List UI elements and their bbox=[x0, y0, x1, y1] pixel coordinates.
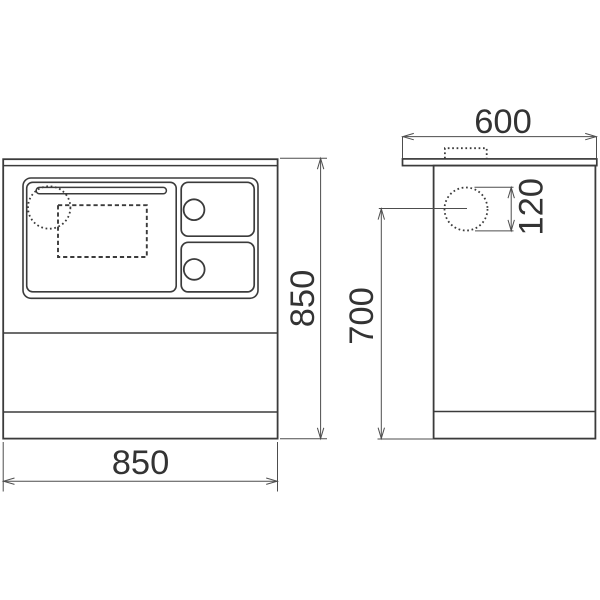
svg-text:850: 850 bbox=[112, 444, 170, 482]
svg-text:700: 700 bbox=[343, 287, 381, 345]
svg-text:600: 600 bbox=[474, 103, 532, 141]
svg-text:850: 850 bbox=[284, 270, 322, 328]
svg-text:120: 120 bbox=[513, 178, 551, 236]
